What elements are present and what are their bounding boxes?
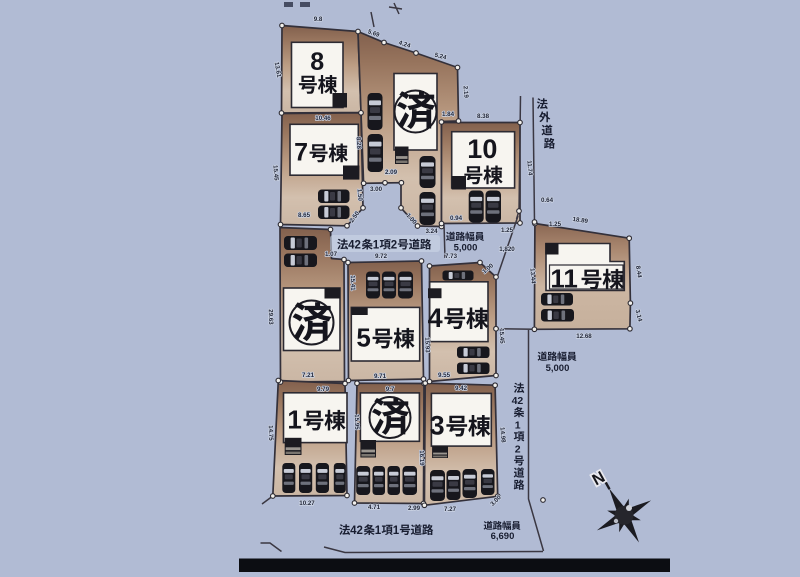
svg-text:11.74: 11.74 [525,160,533,176]
svg-text:2.19: 2.19 [461,86,469,99]
svg-text:1.84: 1.84 [442,111,455,118]
svg-text:7.21: 7.21 [302,372,315,379]
svg-text:13.44: 13.44 [528,268,536,285]
svg-text:16.19: 16.19 [418,450,426,466]
svg-text:8.28: 8.28 [355,137,363,150]
svg-text:9.79: 9.79 [317,386,330,393]
svg-text:1: 1 [375,525,382,537]
svg-text:3.24: 3.24 [425,228,438,235]
svg-text:1.07: 1.07 [325,251,338,258]
svg-text:N: N [590,469,608,489]
svg-text:42: 42 [350,525,363,537]
svg-text:1: 1 [287,405,301,435]
svg-text:15.41: 15.41 [349,275,357,291]
svg-text:7.27: 7.27 [444,506,457,513]
svg-text:9.7: 9.7 [386,386,395,393]
svg-text:8.65: 8.65 [298,212,311,219]
svg-text:1.50: 1.50 [355,189,363,202]
svg-text:1: 1 [393,525,400,537]
svg-text:42: 42 [348,240,361,252]
svg-text:1: 1 [373,240,380,252]
svg-text:14.98: 14.98 [498,427,506,444]
svg-text:6,690: 6,690 [491,531,515,542]
svg-text:10.46: 10.46 [315,115,331,122]
svg-text:15.45: 15.45 [271,165,279,182]
svg-text:8.38: 8.38 [477,113,490,120]
svg-text:9.42: 9.42 [455,385,468,392]
svg-text:5,000: 5,000 [546,363,570,374]
svg-text:42: 42 [512,395,524,407]
svg-text:10.27: 10.27 [299,500,315,507]
svg-text:2.99: 2.99 [408,505,421,512]
svg-text:8.44: 8.44 [634,265,643,279]
svg-text:8: 8 [310,48,324,76]
svg-text:0.94: 0.94 [450,215,463,222]
svg-text:11: 11 [550,264,578,294]
svg-text:15.45: 15.45 [498,328,506,344]
svg-text:9.72: 9.72 [375,253,388,260]
svg-text:14.75: 14.75 [267,425,275,441]
svg-text:1: 1 [515,419,521,431]
svg-text:15.95: 15.95 [353,414,361,430]
svg-text:2: 2 [391,240,397,252]
svg-text:7.73: 7.73 [445,253,458,260]
svg-text:0.64: 0.64 [541,197,554,204]
svg-text:9.55: 9.55 [438,372,451,379]
svg-text:10: 10 [467,134,497,164]
svg-text:3.00: 3.00 [370,186,383,193]
svg-text:3: 3 [430,411,445,441]
svg-text:1,820: 1,820 [499,246,515,253]
svg-text:13.61: 13.61 [273,62,283,79]
svg-text:3.14: 3.14 [634,309,644,323]
svg-text:1.25: 1.25 [549,221,562,228]
svg-text:9.71: 9.71 [374,373,387,380]
svg-text:9.8: 9.8 [314,16,323,23]
svg-text:2: 2 [515,444,521,456]
svg-text:4: 4 [428,303,443,333]
svg-text:15.93: 15.93 [423,337,431,353]
svg-text:2.09: 2.09 [385,169,398,176]
svg-text:12.68: 12.68 [576,333,592,340]
svg-text:5,000: 5,000 [454,243,478,254]
svg-text:5: 5 [356,323,370,353]
svg-text:1.25: 1.25 [501,227,514,234]
svg-text:29.63: 29.63 [267,309,275,325]
svg-text:18.89: 18.89 [572,216,589,225]
svg-text:7: 7 [294,139,308,167]
svg-text:4.71: 4.71 [368,504,381,511]
